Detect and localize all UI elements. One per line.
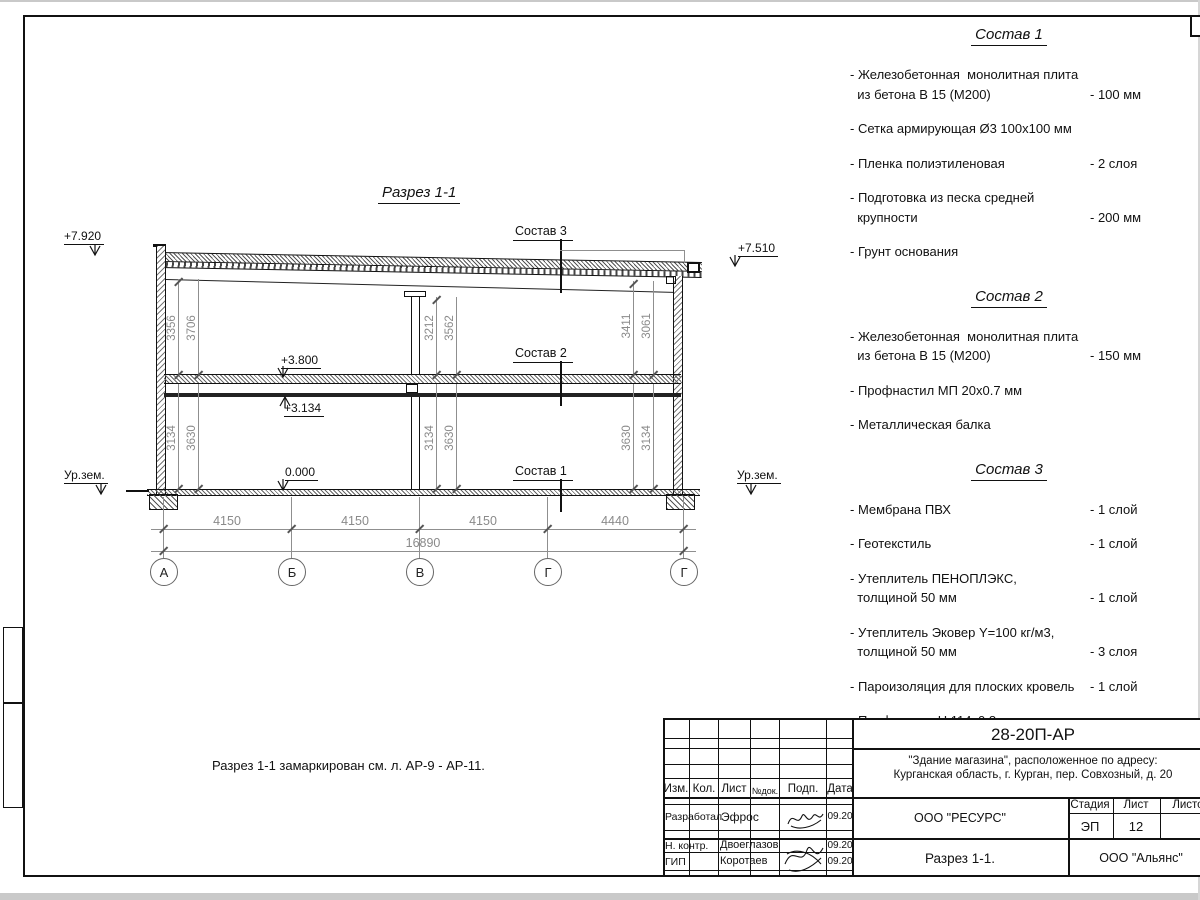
level-beam: +3.134 — [284, 401, 324, 417]
tb-line — [663, 778, 853, 779]
item-value: - 1 слой — [1090, 588, 1168, 608]
tb-stage-value: ЭП — [1081, 819, 1100, 834]
dim-line — [198, 279, 199, 374]
axis-label: Г — [680, 565, 687, 580]
callout-leader — [560, 239, 562, 293]
dim-value: 3630 — [621, 403, 633, 473]
item-value: - 1 слой — [1090, 534, 1168, 554]
tb-col-list: Лист — [722, 783, 747, 795]
composition-item: - Металлическая балка — [850, 415, 1168, 435]
tb-name-developer: Эфрос — [721, 810, 759, 824]
tb-line — [663, 797, 1200, 799]
tb-project-line1: "Здание магазина", расположенное по адре… — [908, 755, 1157, 767]
dim-value: 3411 — [621, 291, 633, 361]
corner-doc-box — [1190, 15, 1200, 37]
floor-beam — [164, 393, 681, 397]
composition-item: - Геотекстиль- 1 слой — [850, 534, 1168, 554]
column-upper — [411, 297, 420, 374]
compositions-panel: Состав 1 - Железобетонная монолитная пли… — [850, 26, 1168, 780]
axis-label: А — [160, 565, 169, 580]
span-dim: 4150 — [341, 514, 369, 528]
dim-line — [198, 384, 199, 489]
item-name: - Сетка армирующая Ø3 100х100 мм — [850, 119, 1090, 139]
item-value: - 1 слой — [1090, 500, 1168, 520]
tb-col-podp: Подп. — [788, 783, 819, 795]
wall-left — [156, 246, 166, 496]
composition-item: - Железобетонная монолитная плита из бет… — [850, 65, 1168, 104]
composition-title: Состав 1 — [850, 26, 1168, 43]
composition-item: - Подготовка из песка средней крупности-… — [850, 188, 1168, 227]
tb-line — [1160, 797, 1161, 838]
ground-level-left: Ур.зем. — [64, 468, 108, 484]
dim-line — [633, 281, 634, 374]
dim-line — [456, 384, 457, 489]
ground-level-right: Ур.зем. — [737, 468, 781, 484]
axis-bubble-b: Б — [278, 558, 306, 586]
composition-item: - Утеплитель Эковер Y=100 кг/м3, толщино… — [850, 623, 1168, 662]
tb-name-ncontr: Двоеглазов — [720, 839, 778, 851]
dim-line — [456, 297, 457, 374]
composition-item: - Профнастил МП 20х0.7 мм — [850, 381, 1168, 401]
dim-value: 3212 — [424, 293, 436, 363]
tb-col-ndok: №док. — [752, 786, 778, 796]
tb-org-customer: ООО "Альянс" — [1099, 851, 1183, 865]
dim-value: 3706 — [186, 293, 198, 363]
tb-line — [663, 830, 853, 831]
column-joint — [406, 384, 418, 393]
axis-label: Б — [288, 565, 297, 580]
tb-sheet-value: 12 — [1129, 819, 1143, 834]
item-name: - Пленка полиэтиленовая — [850, 154, 1090, 174]
composition-item: - Грунт основания — [850, 242, 1168, 262]
composition-title: Состав 3 — [850, 461, 1168, 478]
dim-line — [653, 384, 654, 489]
tb-col-kol: Кол. — [693, 783, 716, 795]
composition-item: - Сетка армирующая Ø3 100х100 мм — [850, 119, 1168, 139]
roof-extension-line — [684, 250, 685, 263]
item-value: - 1 слой — [1090, 677, 1168, 697]
axis-bubble-v: В — [406, 558, 434, 586]
tb-date-gip: 09.20 — [827, 856, 852, 867]
tb-role-ncontr: Н. контр. — [665, 840, 708, 852]
span-dim: 4440 — [601, 514, 629, 528]
dim-line — [436, 384, 437, 489]
signature-gip — [781, 838, 827, 874]
tb-line — [663, 738, 853, 739]
tb-line — [1068, 797, 1070, 877]
item-name: - Утеплитель Эковер Y=100 кг/м3, толщино… — [850, 623, 1090, 662]
tb-line — [1068, 813, 1200, 814]
callout-sostav2: Состав 2 — [513, 346, 573, 363]
column-lower — [411, 397, 420, 489]
page-edge-bottom — [0, 893, 1200, 900]
composition-item: - Пароизоляция для плоских кровель- 1 сл… — [850, 677, 1168, 697]
item-value: - 200 мм — [1090, 208, 1168, 228]
axis-bubble-g2: Г — [670, 558, 698, 586]
composition-title: Состав 2 — [850, 288, 1168, 305]
tb-col-data: Дата — [827, 783, 852, 795]
tb-org-designer: ООО "РЕСУРС" — [914, 811, 1006, 825]
axis-label: В — [416, 565, 425, 580]
ground-slab-toe — [126, 490, 149, 492]
item-name: - Грунт основания — [850, 242, 1090, 262]
level-arrow-icon — [744, 483, 758, 496]
margin-cell-1 — [3, 627, 23, 704]
item-name: - Железобетонная монолитная плита из бет… — [850, 65, 1090, 104]
tb-line — [663, 748, 853, 749]
tb-role-gip: ГИП — [665, 856, 686, 868]
dim-line — [436, 297, 437, 374]
dim-line — [653, 281, 654, 374]
level-roof-right: +7.510 — [738, 241, 778, 257]
dim-line — [633, 384, 634, 489]
dim-value: 3562 — [444, 293, 456, 363]
drawing-sheet: Разрез 1-1 +7.920 +7.510 +3.800 +3.134 0… — [0, 0, 1200, 900]
tb-date-ncontr: 09.20 — [827, 840, 852, 851]
level-arrow-icon — [88, 244, 102, 257]
item-value: - 150 мм — [1090, 346, 1168, 366]
item-value: - 2 слоя — [1090, 154, 1168, 174]
dim-line — [178, 279, 179, 374]
tb-line — [1113, 797, 1114, 838]
dim-value: 3630 — [444, 403, 456, 473]
wall-right-bracket — [666, 276, 676, 284]
level-arrow-icon — [94, 483, 108, 496]
composition-item: - Пленка полиэтиленовая- 2 слоя — [850, 154, 1168, 174]
item-name: - Профнастил МП 20х0.7 мм — [850, 381, 1090, 401]
foundation-right — [666, 494, 695, 510]
dim-value: 3630 — [186, 403, 198, 473]
span-dim: 4150 — [213, 514, 241, 528]
item-name: - Утеплитель ПЕНОПЛЭКС, толщиной 50 мм — [850, 569, 1090, 608]
tb-line — [852, 748, 1200, 750]
callout-sostav3: Состав 3 — [513, 224, 573, 241]
dim-value: 3134 — [424, 403, 436, 473]
tb-sheets-label: Листов — [1172, 799, 1200, 811]
roof-extension-line — [560, 250, 684, 251]
floor-slab — [164, 374, 681, 384]
tb-sheet-label: Лист — [1124, 799, 1149, 811]
item-name: - Геотекстиль — [850, 534, 1090, 554]
dim-value: 3356 — [166, 293, 178, 363]
dim-value: 3061 — [641, 291, 653, 361]
callout-sostav1: Состав 1 — [513, 464, 573, 481]
tb-role-developer: Разработал — [665, 811, 722, 823]
tb-col-izm: Изм. — [664, 783, 689, 795]
span-dim: 4150 — [469, 514, 497, 528]
signature-developer — [785, 806, 825, 830]
composition-item: - Железобетонная монолитная плита из бет… — [850, 327, 1168, 366]
item-value: - 100 мм — [1090, 85, 1168, 105]
page-edge-top — [0, 0, 1200, 2]
tb-line — [663, 764, 853, 765]
total-dim: 16890 — [406, 536, 441, 550]
callout-leader — [560, 361, 562, 406]
tb-name-gip: Коротаев — [720, 855, 768, 867]
level-arrow-icon — [276, 479, 290, 492]
level-roof-left: +7.920 — [64, 229, 104, 245]
dim-line — [178, 384, 179, 489]
composition-item: - Мембрана ПВХ- 1 слой — [850, 500, 1168, 520]
level-arrow-icon — [276, 366, 290, 379]
tb-doc-number: 28-20П-АР — [991, 725, 1075, 745]
roof-fascia-cap — [687, 262, 700, 273]
dim-line-total — [151, 551, 696, 552]
level-arrow-icon — [728, 255, 742, 268]
composition-item: - Утеплитель ПЕНОПЛЭКС, толщиной 50 мм- … — [850, 569, 1168, 608]
tb-drawing-name: Разрез 1-1. — [925, 851, 995, 866]
item-name: - Пароизоляция для плоских кровель — [850, 677, 1090, 697]
axis-bubble-g1: Г — [534, 558, 562, 586]
section-title: Разрез 1-1 — [378, 184, 460, 204]
tb-stage-label: Стадия — [1070, 799, 1109, 811]
item-name: - Металлическая балка — [850, 415, 1090, 435]
axis-label: Г — [544, 565, 551, 580]
item-name: - Подготовка из песка средней крупности — [850, 188, 1090, 227]
item-name: - Мембрана ПВХ — [850, 500, 1090, 520]
wall-right — [673, 276, 683, 496]
dim-value: 3134 — [641, 403, 653, 473]
item-value: - 3 слоя — [1090, 642, 1168, 662]
tb-date-developer: 09.20 — [827, 811, 852, 822]
dim-value: 3134 — [166, 403, 178, 473]
callout-leader — [560, 479, 562, 512]
dim-line-spans — [151, 529, 696, 530]
drawing-note: Разрез 1-1 замаркирован см. л. АР-9 - АР… — [212, 758, 485, 773]
axis-bubble-a: А — [150, 558, 178, 586]
margin-cell-2 — [3, 702, 23, 808]
item-name: - Железобетонная монолитная плита из бет… — [850, 327, 1090, 366]
tb-project-line2: Курганская область, г. Курган, пер. Совх… — [894, 769, 1173, 781]
ground-slab — [147, 489, 700, 496]
tb-line — [663, 804, 853, 805]
